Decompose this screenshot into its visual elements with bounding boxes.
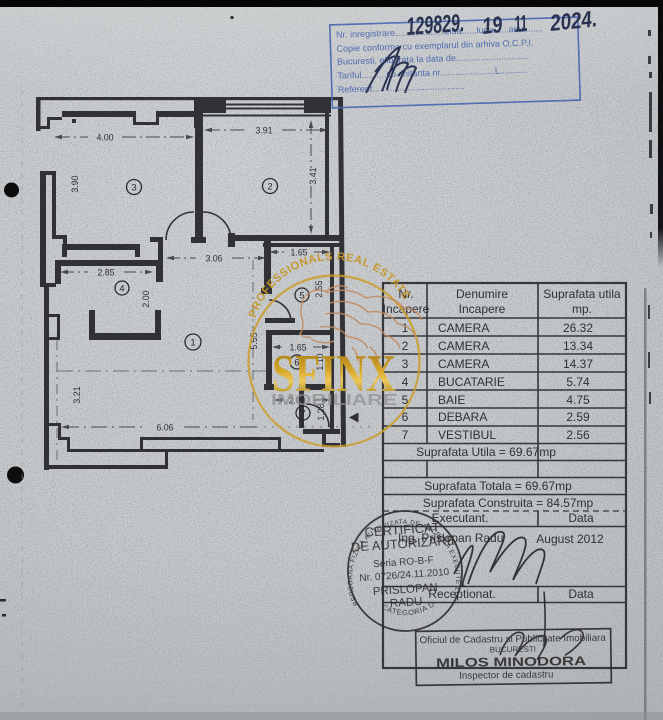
svg-text:Inspector de cadastru: Inspector de cadastru: [459, 669, 553, 681]
svg-text:4: 4: [402, 375, 409, 389]
svg-text:19: 19: [481, 11, 504, 39]
svg-text:Suprafata utila: Suprafata utila: [543, 287, 621, 301]
svg-text:3.91: 3.91: [255, 126, 272, 136]
svg-text:3.21: 3.21: [72, 386, 82, 403]
svg-text:RADU: RADU: [390, 596, 423, 610]
svg-text:2: 2: [267, 182, 272, 193]
svg-text:3.90: 3.90: [70, 175, 80, 192]
svg-text:11: 11: [513, 10, 529, 37]
svg-text:Data: Data: [568, 511, 594, 525]
svg-text:Data: Data: [568, 587, 594, 601]
svg-text:BAIE: BAIE: [438, 393, 465, 407]
svg-text:1: 1: [190, 338, 195, 349]
svg-text:2: 2: [402, 339, 409, 353]
svg-text:CAMERA: CAMERA: [438, 357, 489, 371]
svg-text:August 2012: August 2012: [536, 532, 604, 546]
svg-text:VESTIBUL: VESTIBUL: [438, 428, 496, 442]
svg-text:3: 3: [402, 357, 409, 371]
svg-text:mp.: mp.: [572, 302, 592, 316]
svg-text:Suprafata Totala = 69.67mp: Suprafata Totala = 69.67mp: [424, 479, 572, 493]
svg-text:129829.: 129829.: [405, 9, 465, 41]
svg-text:6.06: 6.06: [156, 423, 173, 433]
svg-text:13.34: 13.34: [563, 339, 593, 353]
svg-text:2.00: 2.00: [141, 290, 151, 307]
svg-text:5.74: 5.74: [566, 375, 590, 389]
svg-text:BUCURESTI: BUCURESTI: [490, 645, 536, 655]
svg-text:3: 3: [131, 183, 136, 194]
svg-text:Suprafata Utila = 69.67mp: Suprafata Utila = 69.67mp: [416, 445, 556, 459]
svg-text:7: 7: [300, 409, 305, 420]
svg-text:4: 4: [119, 284, 124, 295]
svg-text:2.59: 2.59: [566, 410, 590, 424]
svg-text:Denumire: Denumire: [456, 287, 508, 301]
svg-text:IMOBILIARE: IMOBILIARE: [271, 392, 397, 409]
svg-text:2.56: 2.56: [566, 428, 590, 442]
svg-text:2024.: 2024.: [548, 5, 598, 36]
svg-text:2.85: 2.85: [97, 268, 114, 278]
svg-text:3.41: 3.41: [308, 167, 318, 184]
svg-text:4.75: 4.75: [566, 393, 590, 407]
svg-text:14.37: 14.37: [563, 357, 593, 371]
svg-text:CAMERA: CAMERA: [438, 321, 489, 335]
svg-text:DEBARA: DEBARA: [438, 410, 487, 424]
svg-text:Suprafata Construita = 84.57mp: Suprafata Construita = 84.57mp: [423, 496, 594, 510]
svg-text:2.55: 2.55: [314, 280, 324, 297]
svg-text:MILOS MINODORA: MILOS MINODORA: [436, 654, 586, 670]
svg-text:Incapere: Incapere: [459, 302, 506, 316]
svg-text:4.00: 4.00: [96, 133, 113, 143]
svg-text:26.32: 26.32: [563, 321, 593, 335]
svg-text:Receptionat.: Receptionat.: [428, 587, 495, 601]
svg-text:CAMERA: CAMERA: [438, 339, 489, 353]
svg-text:7: 7: [402, 428, 409, 442]
svg-text:3.06: 3.06: [205, 254, 222, 264]
svg-text:BUCATARIE: BUCATARIE: [438, 375, 505, 389]
